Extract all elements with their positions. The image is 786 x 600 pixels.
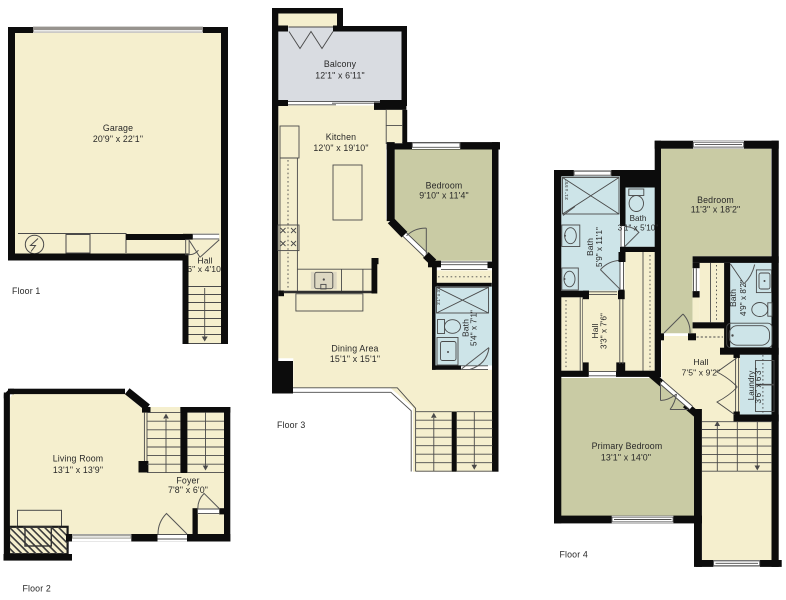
svg-text:Dining Area: Dining Area — [331, 344, 378, 354]
svg-text:12'1" x 6'11": 12'1" x 6'11" — [315, 71, 365, 81]
svg-text:Bedroom: Bedroom — [426, 181, 463, 191]
svg-text:Bath: Bath — [728, 289, 738, 307]
svg-text:13'1" x 13'9": 13'1" x 13'9" — [53, 465, 103, 475]
svg-text:20'9" x 22'1": 20'9" x 22'1" — [93, 134, 143, 144]
svg-text:Bath: Bath — [630, 214, 647, 223]
svg-text:'6" x 4'10: '6" x 4'10 — [186, 264, 222, 274]
svg-text:7'8" x 6'0": 7'8" x 6'0" — [168, 485, 208, 495]
svg-text:5'4" x 7'1": 5'4" x 7'1" — [470, 310, 479, 346]
svg-text:9'10" x 11'4": 9'10" x 11'4" — [419, 191, 469, 201]
svg-text:3'6" x 6'3": 3'6" x 6'3" — [754, 367, 763, 403]
svg-text:12'0" x 19'10": 12'0" x 19'10" — [313, 143, 368, 153]
svg-text:Garage: Garage — [103, 123, 133, 133]
svg-text:5'9" x 11'1": 5'9" x 11'1" — [595, 227, 604, 267]
svg-text:11'3" x 18'2": 11'3" x 18'2" — [691, 205, 741, 215]
svg-text:4'9" x 8'2": 4'9" x 8'2" — [739, 280, 748, 316]
svg-text:13'1" x 14'0": 13'1" x 14'0" — [601, 453, 651, 463]
svg-text:Kitchen: Kitchen — [326, 132, 356, 142]
svg-text:3'3" x 7'6": 3'3" x 7'6" — [600, 313, 609, 349]
svg-text:Hall: Hall — [693, 357, 708, 367]
svg-text:Living Room: Living Room — [53, 454, 104, 464]
svg-text:Balcony: Balcony — [324, 59, 357, 69]
svg-text:15'1" x 15'1": 15'1" x 15'1" — [330, 354, 380, 364]
svg-text:Floor 2: Floor 2 — [23, 584, 51, 594]
svg-text:Primary Bedroom: Primary Bedroom — [592, 441, 663, 451]
svg-text:Floor 1: Floor 1 — [12, 286, 40, 296]
svg-text:Floor 4: Floor 4 — [560, 550, 588, 560]
svg-text:Bedroom: Bedroom — [697, 195, 734, 205]
svg-text:3'1" x 5'5": 3'1" x 5'5" — [564, 180, 569, 200]
svg-text:Hall: Hall — [590, 323, 600, 338]
svg-text:3'1" x 5'10": 3'1" x 5'10" — [618, 224, 659, 233]
svg-text:Bath: Bath — [585, 238, 595, 256]
svg-text:Floor 3: Floor 3 — [277, 420, 305, 430]
svg-text:7'5" x 9'2": 7'5" x 9'2" — [682, 368, 721, 378]
svg-text:3'1" x 3'1": 3'1" x 3'1" — [436, 285, 441, 305]
